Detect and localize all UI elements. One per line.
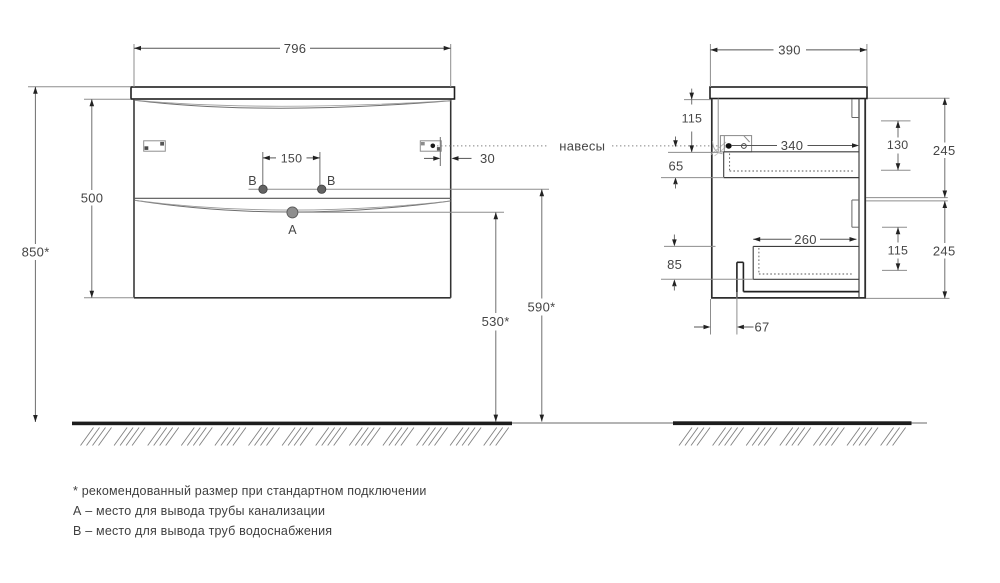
svg-text:130: 130: [887, 138, 909, 152]
svg-text:A: A: [288, 223, 297, 237]
svg-text:B: B: [327, 174, 336, 188]
svg-text:150: 150: [281, 151, 303, 165]
svg-text:390: 390: [778, 43, 801, 58]
svg-text:В – место для вывода труб водо: В – место для вывода труб водоснабжения: [73, 524, 332, 538]
svg-text:245: 245: [933, 243, 956, 258]
svg-text:530*: 530*: [482, 314, 510, 329]
svg-text:850*: 850*: [22, 245, 50, 260]
svg-text:340: 340: [781, 138, 804, 153]
svg-text:115: 115: [682, 112, 703, 126]
svg-text:590*: 590*: [528, 299, 556, 314]
svg-text:* рекомендованный размер при с: * рекомендованный размер при стандартном…: [73, 484, 427, 498]
svg-text:B: B: [248, 174, 257, 188]
svg-text:навесы: навесы: [559, 138, 605, 153]
svg-text:500: 500: [81, 190, 104, 205]
svg-text:115: 115: [888, 244, 909, 258]
svg-text:796: 796: [284, 41, 307, 56]
svg-text:85: 85: [667, 257, 682, 272]
svg-text:245: 245: [933, 143, 956, 158]
svg-text:67: 67: [754, 320, 769, 335]
svg-text:260: 260: [794, 232, 817, 247]
svg-text:30: 30: [480, 151, 495, 166]
svg-text:А – место для вывода трубы кан: А – место для вывода трубы канализации: [73, 504, 325, 518]
svg-text:65: 65: [668, 158, 683, 173]
